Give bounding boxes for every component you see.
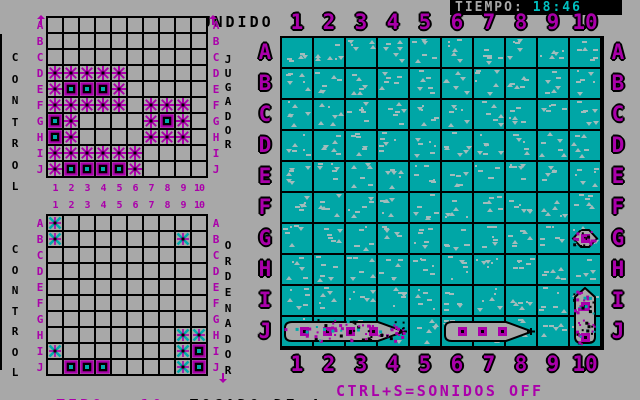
wave-mark	[359, 229, 364, 231]
wave-mark	[382, 226, 387, 228]
wave-mark	[478, 170, 483, 172]
ocean-cell-G9[interactable]	[538, 224, 568, 253]
cell-I4	[96, 146, 110, 160]
wave-mark	[589, 205, 595, 209]
ocean-cell-D7[interactable]	[474, 131, 504, 160]
wave-mark	[428, 87, 433, 89]
wave-mark	[512, 121, 518, 125]
ocean-right-row-labels: ABCDEFGHIJ	[606, 36, 630, 350]
ocean-cell-A1[interactable]	[282, 38, 312, 67]
wave-mark	[290, 289, 292, 291]
cell-A3	[80, 18, 94, 32]
ocean-cell-G6[interactable]	[442, 224, 472, 253]
ocean-cell-F1[interactable]	[282, 193, 312, 222]
ocean-cell-F7[interactable]	[474, 193, 504, 222]
wave-mark	[445, 245, 450, 247]
ocean-cell-I8[interactable]	[506, 286, 536, 315]
ocean-cell-A7[interactable]	[474, 38, 504, 67]
wave-mark	[363, 247, 369, 251]
ocean-cell-H4[interactable]	[378, 255, 408, 284]
splash-icon	[112, 66, 126, 80]
cell-J10	[192, 162, 206, 176]
wave-mark	[550, 269, 556, 273]
wave-mark	[486, 113, 491, 115]
wave-mark	[335, 44, 340, 46]
ocean-cell-F10[interactable]	[570, 193, 600, 222]
wave-mark	[541, 306, 546, 308]
wave-mark	[551, 50, 557, 54]
splash-icon	[80, 146, 94, 160]
computer-control-grid	[46, 214, 208, 376]
ocean-cell-A3[interactable]	[346, 38, 376, 67]
wave-mark	[316, 256, 321, 258]
ocean-cell-H9[interactable]	[538, 255, 568, 284]
ocean-cell-F2[interactable]	[314, 193, 344, 222]
cell-D5	[112, 264, 126, 278]
ocean-cell-H10[interactable]	[570, 255, 600, 284]
ocean-bottom-col-labels: 12345678910	[280, 352, 604, 376]
ocean-cell-B7[interactable]	[474, 69, 504, 98]
wave-mark	[291, 123, 297, 127]
ocean-cell-G4[interactable]	[378, 224, 408, 253]
wave-mark	[320, 201, 325, 203]
wave-mark	[448, 45, 450, 47]
ocean-cell-A10[interactable]	[570, 38, 600, 67]
ocean-col-label-4: 4	[378, 352, 408, 376]
ocean-cell-I9[interactable]	[538, 286, 568, 315]
wave-mark	[351, 44, 353, 46]
cell-D7	[144, 66, 158, 80]
ocean-cell-C4[interactable]	[378, 100, 408, 129]
ocean-cell-C7[interactable]	[474, 100, 504, 129]
ocean-row-label-B: B	[606, 71, 630, 95]
ocean-cell-I7[interactable]	[474, 286, 504, 315]
wave-mark	[513, 267, 518, 269]
wave-mark	[300, 53, 305, 55]
cell-D2	[64, 66, 78, 80]
row-label-J: J	[34, 360, 46, 376]
wave-mark	[521, 121, 526, 123]
ocean-cell-C9[interactable]	[538, 100, 568, 129]
wave-mark	[498, 208, 503, 210]
cell-J7	[144, 162, 158, 176]
cell-A3	[80, 216, 94, 230]
ocean-cell-I6[interactable]	[442, 286, 472, 315]
wave-mark	[327, 56, 333, 60]
cell-B6	[128, 232, 142, 246]
wave-mark	[384, 235, 390, 239]
ocean-cell-E10[interactable]	[570, 162, 600, 191]
wave-mark	[524, 148, 529, 150]
wave-mark	[380, 138, 385, 140]
wave-mark	[305, 294, 310, 296]
cell-F10	[192, 98, 206, 112]
ocean-cell-E9[interactable]	[538, 162, 568, 191]
ocean-cell-I2[interactable]	[314, 286, 344, 315]
ocean-cell-D2[interactable]	[314, 131, 344, 160]
ocean-cell-D3[interactable]	[346, 131, 376, 160]
wave-mark	[283, 228, 288, 230]
cell-F6	[128, 296, 142, 310]
wave-mark	[354, 245, 359, 247]
cell-H9	[176, 130, 190, 144]
wave-mark	[477, 308, 483, 312]
wave-mark	[582, 41, 587, 43]
wave-mark	[295, 206, 300, 208]
cell-I8	[160, 146, 174, 160]
cell-J4	[96, 162, 110, 176]
splash-icon	[64, 146, 78, 160]
cell-C8	[160, 50, 174, 64]
arrow-up-icon	[37, 15, 45, 25]
vertical-label-char: C	[12, 52, 19, 63]
cell-H10	[192, 130, 206, 144]
wave-mark	[325, 208, 330, 210]
ocean-cell-I1[interactable]	[282, 286, 312, 315]
wave-mark	[422, 105, 424, 107]
cell-F2	[64, 98, 78, 112]
wave-mark	[449, 111, 454, 113]
ocean-cell-G5[interactable]	[410, 224, 440, 253]
ocean-cell-F3[interactable]	[346, 193, 376, 222]
ocean-cell-I4[interactable]	[378, 286, 408, 315]
wave-mark	[574, 204, 579, 206]
cell-E6	[128, 82, 142, 96]
ocean-cell-H6[interactable]	[442, 255, 472, 284]
splash-icon	[144, 114, 158, 128]
ocean-cell-E6[interactable]	[442, 162, 472, 191]
wave-mark	[487, 208, 493, 212]
cell-F4	[96, 296, 110, 310]
ocean-cell-F8[interactable]	[506, 193, 536, 222]
cell-C1	[48, 50, 62, 64]
wave-mark	[498, 123, 504, 127]
cell-C3	[80, 248, 94, 262]
ship-2-I10	[570, 286, 600, 346]
cell-D8	[160, 66, 174, 80]
wave-mark	[561, 278, 566, 280]
wave-mark	[386, 259, 391, 261]
cell-F6	[128, 98, 142, 112]
wave-mark	[575, 174, 577, 176]
wave-mark	[296, 306, 302, 310]
cell-H3	[80, 328, 94, 342]
wave-mark	[430, 152, 435, 154]
wave-mark	[557, 292, 559, 294]
cell-J6	[128, 162, 142, 176]
ocean-cell-H1[interactable]	[282, 255, 312, 284]
col-label-10: 10	[191, 199, 207, 213]
vertical-label-char: N	[12, 95, 19, 106]
cell-H7	[144, 130, 158, 144]
ocean-cell-D5[interactable]	[410, 131, 440, 160]
ocean-cell-A2[interactable]	[314, 38, 344, 67]
ocean-row-label-D: D	[253, 133, 277, 157]
ocean-cell-I3[interactable]	[346, 286, 376, 315]
ocean-cell-I5[interactable]	[410, 286, 440, 315]
ocean-cell-E5[interactable]	[410, 162, 440, 191]
wave-mark	[337, 79, 342, 81]
ocean-cell-H2[interactable]	[314, 255, 344, 284]
wave-mark	[491, 262, 493, 264]
ocean-cell-G3[interactable]	[346, 224, 376, 253]
wave-mark	[444, 79, 450, 83]
wave-mark	[553, 306, 558, 308]
splash-icon	[128, 162, 142, 176]
wave-mark	[347, 111, 352, 113]
cell-I9	[176, 344, 190, 358]
wave-mark	[546, 110, 551, 112]
ocean-cell-D8[interactable]	[506, 131, 536, 160]
wave-mark	[516, 138, 522, 142]
col-label-2: 2	[63, 199, 79, 213]
cell-A9	[176, 18, 190, 32]
game-screen: TIRO= 10:HUNDIDO TIEMPO: 18:46 CONTROL A…	[0, 0, 640, 400]
wave-mark	[451, 52, 457, 56]
wave-mark	[321, 264, 326, 266]
ocean-cell-B9[interactable]	[538, 69, 568, 98]
ocean-cell-D9[interactable]	[538, 131, 568, 160]
ocean-cell-E2[interactable]	[314, 162, 344, 191]
vertical-label-char: G	[225, 82, 232, 93]
ocean-cell-H8[interactable]	[506, 255, 536, 284]
wave-mark	[423, 269, 428, 271]
ocean-cell-C10[interactable]	[570, 100, 600, 129]
ocean-cell-G1[interactable]	[282, 224, 312, 253]
cell-D1	[48, 264, 62, 278]
cell-B10	[192, 232, 206, 246]
wave-mark	[432, 265, 434, 267]
ocean-cell-F5[interactable]	[410, 193, 440, 222]
wave-mark	[583, 273, 589, 277]
ocean-cell-J5[interactable]	[410, 317, 440, 346]
wave-mark	[487, 266, 489, 268]
computer-side-label: ORDENADOR	[220, 240, 236, 376]
splash-icon	[64, 114, 78, 128]
wave-mark	[510, 83, 515, 85]
wave-mark	[497, 306, 503, 310]
col-label-3: 3	[79, 182, 95, 196]
cell-E10	[192, 82, 206, 96]
cell-H5	[112, 130, 126, 144]
ocean-cell-D10[interactable]	[570, 131, 600, 160]
ocean-cell-E4[interactable]	[378, 162, 408, 191]
splash-icon	[112, 82, 126, 96]
splash-icon	[112, 98, 126, 112]
splash-icon	[176, 344, 190, 358]
cell-B7	[144, 232, 158, 246]
ocean-cell-F9[interactable]	[538, 193, 568, 222]
ocean-col-label-5: 5	[410, 10, 440, 34]
ocean-cell-A8[interactable]	[506, 38, 536, 67]
vertical-label-char: J	[225, 54, 232, 65]
cell-C1	[48, 248, 62, 262]
ocean-cell-F4[interactable]	[378, 193, 408, 222]
cell-H2	[64, 130, 78, 144]
ocean-cell-B10[interactable]	[570, 69, 600, 98]
vertical-label-char: R	[225, 139, 232, 150]
ocean-cell-D6[interactable]	[442, 131, 472, 160]
cell-I6	[128, 146, 142, 160]
wave-mark	[359, 271, 364, 273]
ocean-cell-G7[interactable]	[474, 224, 504, 253]
wave-mark	[586, 122, 592, 126]
wave-mark	[593, 57, 598, 59]
wave-mark	[320, 307, 325, 309]
ocean-cell-B4[interactable]	[378, 69, 408, 98]
cell-I10	[192, 146, 206, 160]
wave-mark	[539, 153, 545, 157]
wave-mark	[587, 259, 592, 261]
wave-mark	[394, 82, 399, 84]
ship-sprite	[282, 317, 408, 346]
cell-G5	[112, 114, 126, 128]
wave-mark	[562, 50, 564, 52]
cell-E8	[160, 280, 174, 294]
wave-mark	[328, 237, 333, 239]
cell-A8	[160, 216, 174, 230]
ocean-col-label-3: 3	[346, 352, 376, 376]
ocean-cell-C2[interactable]	[314, 100, 344, 129]
wave-mark	[519, 306, 525, 310]
wave-mark	[509, 166, 514, 168]
ocean-cell-E1[interactable]	[282, 162, 312, 191]
cell-H9	[176, 328, 190, 342]
ocean-cell-G8[interactable]	[506, 224, 536, 253]
wave-mark	[355, 211, 360, 213]
row-label-B: B	[34, 232, 46, 248]
wave-mark	[382, 132, 387, 134]
ship-sprite	[570, 224, 600, 253]
ocean-cell-C8[interactable]	[506, 100, 536, 129]
wave-mark	[590, 59, 595, 61]
wave-mark	[530, 258, 535, 260]
cell-A1	[48, 216, 62, 230]
ocean-cell-E3[interactable]	[346, 162, 376, 191]
ocean-cell-C5[interactable]	[410, 100, 440, 129]
ocean-cell-C6[interactable]	[442, 100, 472, 129]
wave-mark	[552, 226, 554, 228]
wave-mark	[388, 108, 393, 110]
ocean-cell-B3[interactable]	[346, 69, 376, 98]
ocean-cell-E8[interactable]	[506, 162, 536, 191]
wave-mark	[288, 101, 290, 103]
wave-mark	[362, 148, 367, 150]
wave-mark	[553, 327, 559, 331]
ocean-cell-A4[interactable]	[378, 38, 408, 67]
wave-mark	[466, 216, 468, 218]
ocean-cell-C3[interactable]	[346, 100, 376, 129]
ocean-cell-J9[interactable]	[538, 317, 568, 346]
vertical-label-char: A	[225, 96, 232, 107]
wave-mark	[559, 239, 565, 243]
ocean-cell-A6[interactable]	[442, 38, 472, 67]
col-label-8: 8	[159, 182, 175, 196]
ocean-cell-B1[interactable]	[282, 69, 312, 98]
wave-mark	[286, 149, 292, 153]
row-label-H: H	[34, 328, 46, 344]
wave-mark	[592, 109, 598, 113]
col-label-6: 6	[127, 182, 143, 196]
ocean-cell-A5[interactable]	[410, 38, 440, 67]
wave-mark	[362, 206, 367, 208]
left-edge-line	[0, 34, 2, 370]
wave-mark	[524, 79, 529, 81]
wave-mark	[330, 122, 336, 126]
cell-E4	[96, 82, 110, 96]
wave-mark	[489, 197, 494, 199]
wave-mark	[517, 48, 523, 52]
vertical-label-char: R	[12, 326, 19, 337]
wave-mark	[540, 244, 545, 246]
cell-B5	[112, 34, 126, 48]
wave-mark	[561, 153, 567, 157]
cell-I4	[96, 344, 110, 358]
ocean-cell-H3[interactable]	[346, 255, 376, 284]
wave-mark	[493, 83, 499, 87]
ocean-cell-H7[interactable]	[474, 255, 504, 284]
wave-mark	[581, 134, 587, 138]
ocean-col-label-2: 2	[314, 352, 344, 376]
ocean-cell-G2[interactable]	[314, 224, 344, 253]
ocean-cell-B5[interactable]	[410, 69, 440, 98]
wave-mark	[299, 267, 305, 271]
wave-mark	[543, 325, 548, 327]
ocean-cell-B8[interactable]	[506, 69, 536, 98]
ocean-cell-H5[interactable]	[410, 255, 440, 284]
wave-mark	[356, 152, 362, 156]
wave-mark	[492, 242, 498, 246]
wave-mark	[305, 87, 311, 91]
wave-mark	[324, 228, 329, 230]
wave-mark	[395, 263, 401, 267]
wave-mark	[428, 228, 433, 230]
cell-H1	[48, 130, 62, 144]
wave-mark	[365, 163, 371, 167]
cell-F8	[160, 98, 174, 112]
cell-J4	[96, 360, 110, 374]
wave-mark	[512, 116, 518, 120]
wave-mark	[585, 198, 590, 200]
cell-E2	[64, 280, 78, 294]
ocean-cell-D1[interactable]	[282, 131, 312, 160]
ocean-cell-C1[interactable]	[282, 100, 312, 129]
row-label-C: C	[34, 248, 46, 264]
wave-mark	[445, 292, 450, 294]
wave-mark	[514, 206, 519, 208]
cell-B5	[112, 232, 126, 246]
vertical-label-char: L	[12, 367, 19, 378]
row-label-E: E	[34, 82, 46, 98]
wave-mark	[487, 226, 492, 228]
wave-mark	[386, 43, 391, 45]
cell-C4	[96, 248, 110, 262]
ocean-cell-F6[interactable]	[442, 193, 472, 222]
ocean-cell-A9[interactable]	[538, 38, 568, 67]
wave-mark	[370, 274, 376, 278]
wave-mark	[359, 109, 364, 111]
ocean-cell-E7[interactable]	[474, 162, 504, 191]
wave-mark	[557, 139, 563, 143]
ocean-cell-B2[interactable]	[314, 69, 344, 98]
wave-mark	[432, 57, 437, 59]
ocean-cell-B6[interactable]	[442, 69, 472, 98]
ocean-col-label-8: 8	[506, 10, 536, 34]
cell-F7	[144, 296, 158, 310]
col-label-4: 4	[95, 182, 111, 196]
ocean-cell-D4[interactable]	[378, 131, 408, 160]
wave-mark	[398, 170, 404, 174]
